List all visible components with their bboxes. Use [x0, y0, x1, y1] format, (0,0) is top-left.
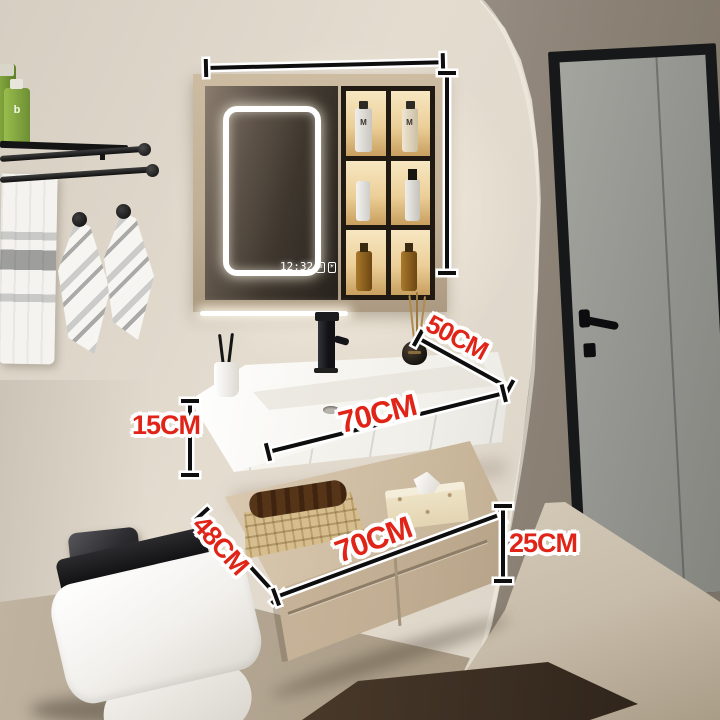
- shelf-cell: [391, 161, 431, 226]
- dimension-line-mirror-height: [445, 73, 449, 273]
- cosmetic-bottle: M: [402, 108, 418, 152]
- cosmetic-bottle: [405, 179, 420, 221]
- light-icon: ☀: [328, 262, 336, 273]
- dimension-line-cabinet-height: [501, 506, 505, 581]
- door-handle: [582, 316, 619, 331]
- green-bottle-label: b: [4, 104, 30, 116]
- door-keyhole: [583, 343, 596, 358]
- shelf-cell: [346, 230, 386, 295]
- cosmetic-bottle: [356, 181, 370, 221]
- faucet-spout: [315, 312, 339, 321]
- amber-bottle: [356, 251, 372, 291]
- shelf-cell: [346, 161, 386, 226]
- towel-hook: [116, 204, 131, 219]
- towel-bar-mount: [138, 143, 151, 156]
- shelf-cell: [391, 230, 431, 295]
- mirror-door: 12:32 ≋ ☀: [205, 86, 338, 300]
- towel-bar-mount: [146, 164, 159, 177]
- faucet: [318, 316, 335, 371]
- bottle-label: M: [402, 118, 418, 127]
- mirror-cabinet: 12:32 ≋ ☀ M M: [193, 74, 447, 312]
- bottle-cap: [406, 101, 415, 109]
- basin-height-label: 15CM: [132, 410, 200, 441]
- door-seam: [655, 57, 685, 593]
- cosmetic-bottle: M: [355, 108, 372, 152]
- defog-icon: ≋: [316, 262, 324, 273]
- cabinet-height-label: 25CM: [509, 528, 577, 559]
- towel-hook: [72, 212, 87, 227]
- bottle-cap: [359, 101, 368, 109]
- mirror-clock: 12:32: [280, 259, 313, 275]
- faucet-base: [314, 368, 338, 373]
- toothbrush-cup: [214, 362, 239, 397]
- shelf-cell: M: [391, 91, 431, 156]
- bottle-label: M: [355, 118, 372, 127]
- shelf-cell: M: [346, 91, 386, 156]
- amber-bottle: [401, 251, 417, 291]
- green-bottle: b: [4, 88, 30, 146]
- bathroom-scene: b 12:32 ≋ ☀ M: [0, 0, 720, 720]
- led-light-ring: [223, 106, 321, 276]
- open-shelf-unit: M M: [341, 86, 435, 300]
- mirror-display: 12:32 ≋ ☀: [280, 259, 336, 275]
- bath-towel: [0, 174, 58, 365]
